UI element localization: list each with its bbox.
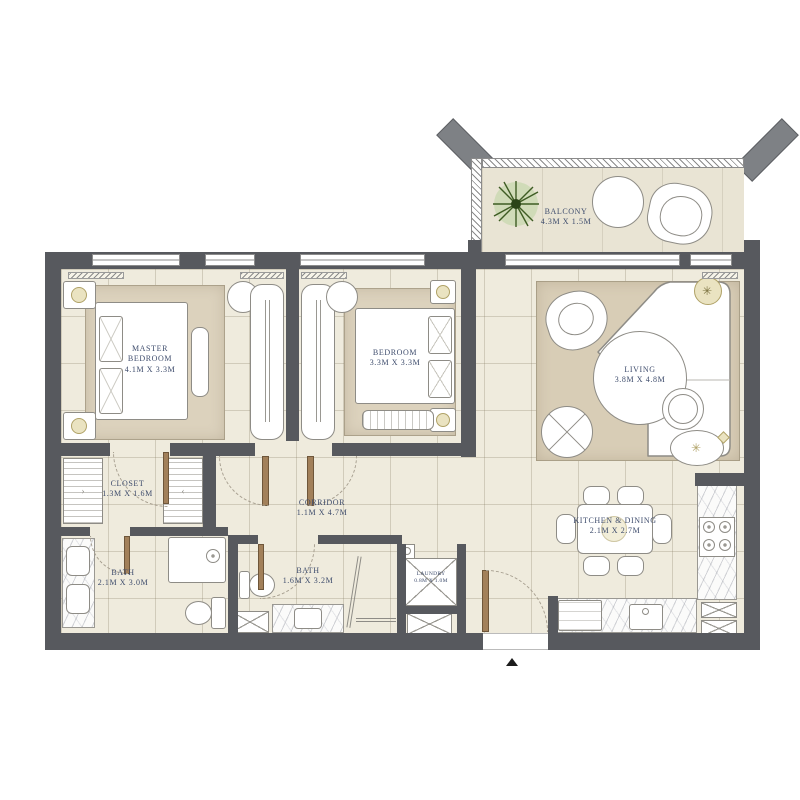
wall xyxy=(548,596,558,633)
master-bench xyxy=(191,327,209,397)
balcony-left-rail xyxy=(471,158,482,252)
towel-rail xyxy=(356,618,396,622)
fridge xyxy=(558,600,602,631)
master-bedroom-label: MASTER BEDROOM4.1M X 3.3M xyxy=(114,344,186,375)
wall xyxy=(45,633,483,650)
lamp-icon xyxy=(71,287,87,303)
plant-icon: ✳ xyxy=(691,442,701,454)
wall xyxy=(461,269,476,457)
corridor-label: CORRIDOR1.1M X 4.7M xyxy=(272,498,372,519)
dining-chair xyxy=(583,556,610,576)
curtain-icon xyxy=(68,272,124,279)
balcony-fin-right xyxy=(735,118,799,182)
faucet-icon xyxy=(642,608,649,615)
dining-chair xyxy=(617,556,644,576)
stool xyxy=(326,281,358,313)
wall xyxy=(286,269,299,441)
master-bath-label: BATH2.1M X 3.0M xyxy=(78,568,168,589)
wall xyxy=(397,544,406,633)
entry-arrow-icon xyxy=(506,658,518,666)
wall xyxy=(397,606,466,614)
wall xyxy=(318,535,402,544)
plant-icon: ✳ xyxy=(702,285,712,297)
burner-icon xyxy=(703,539,715,551)
bedroom-bench xyxy=(362,410,434,430)
wall xyxy=(744,240,760,650)
kitchen-dining-label: KITCHEN & DINING2.1M X 2.7M xyxy=(548,516,682,537)
window xyxy=(92,254,180,266)
sink xyxy=(294,608,322,629)
lamp-icon xyxy=(436,285,450,299)
wall xyxy=(457,544,466,633)
burner-icon xyxy=(703,521,715,533)
dining-chair xyxy=(583,486,610,506)
balcony-railing xyxy=(482,158,744,168)
lamp-icon xyxy=(71,418,87,434)
wall xyxy=(332,443,461,456)
wall xyxy=(228,535,258,544)
curtain-icon xyxy=(240,272,284,279)
wall xyxy=(170,443,255,456)
wall xyxy=(61,527,90,536)
wardrobe-doors xyxy=(316,300,321,422)
wall xyxy=(61,443,110,456)
entry-threshold xyxy=(483,633,548,650)
wall xyxy=(45,252,61,650)
floor-plan: BALCONY4.3M X 1.5M ✳ ✳ › ‹ xyxy=(0,0,800,800)
wall xyxy=(695,473,744,486)
laundry-label: LAUNDRY0.8M X 1.0M xyxy=(404,571,458,585)
bath-label: BATH1.6M X 3.2M xyxy=(262,566,354,587)
burner-icon xyxy=(719,521,731,533)
wall xyxy=(548,633,760,650)
dining-chair xyxy=(617,486,644,506)
round-table xyxy=(541,406,593,458)
bedroom-label: BEDROOM3.3M X 3.3M xyxy=(352,348,438,369)
shaft-box xyxy=(407,613,452,635)
wall xyxy=(468,240,481,254)
burner-icon xyxy=(719,539,731,551)
appliance-box xyxy=(701,602,737,618)
wardrobe-doors xyxy=(265,300,270,422)
shower-head-icon xyxy=(206,549,220,563)
living-label: LIVING3.8M X 4.8M xyxy=(595,365,685,386)
toilet-bowl xyxy=(185,601,212,625)
wall xyxy=(203,456,216,536)
balcony-label: BALCONY4.3M X 1.5M xyxy=(518,207,614,228)
side-table-inner xyxy=(668,394,698,424)
curtain-icon xyxy=(702,272,738,279)
wall xyxy=(130,527,228,536)
curtain-icon xyxy=(301,272,347,279)
closet-label: CLOSET1.3M X 1.6M xyxy=(85,479,170,500)
window xyxy=(690,254,732,266)
toilet-tank xyxy=(211,597,226,629)
window xyxy=(205,254,255,266)
window xyxy=(300,254,425,266)
balcony-sliding-door xyxy=(505,254,680,266)
lamp-icon xyxy=(436,413,450,427)
wall xyxy=(228,544,238,633)
